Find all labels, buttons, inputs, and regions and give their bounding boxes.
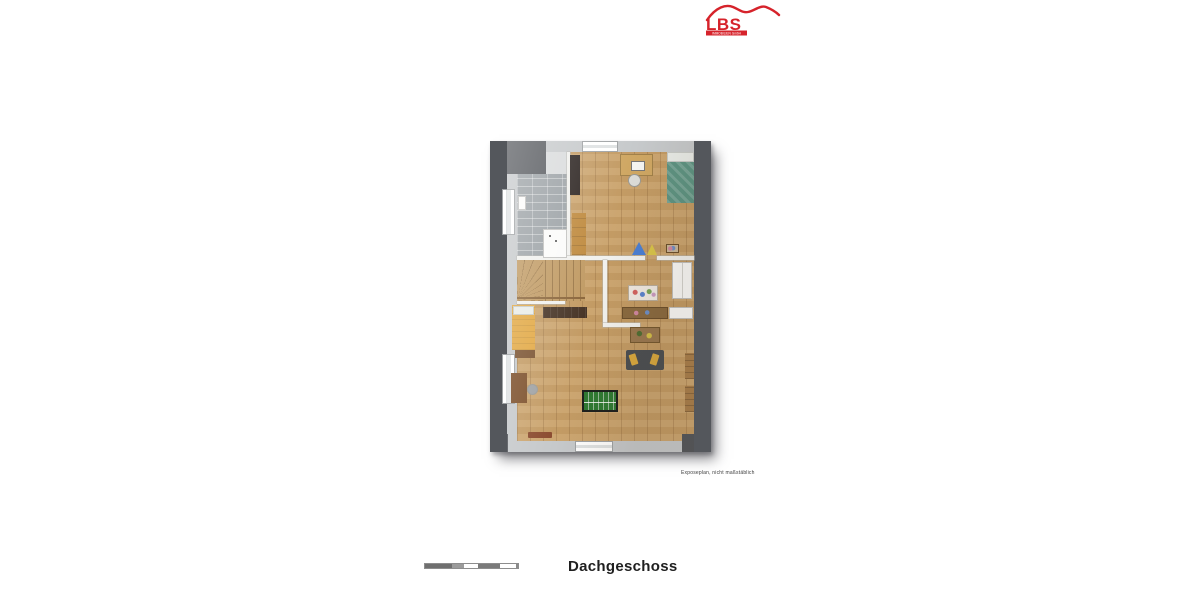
scale-segment	[500, 564, 516, 568]
roof-band-right	[694, 141, 711, 452]
sofa-cushion-left	[628, 353, 638, 366]
plan-caption: Exposeplan, nicht maßstäblich	[681, 470, 755, 476]
bed-bench	[515, 350, 535, 358]
bathroom-entry-floor	[546, 152, 567, 175]
scale-segment	[478, 564, 500, 568]
shelf-right-lower	[685, 386, 694, 412]
lbs-logo: LBS IMMOBILIEN GmbH	[698, 2, 782, 36]
bed-teal-pillow	[667, 152, 694, 162]
desk-playroom	[511, 373, 527, 403]
scale-segment	[516, 564, 518, 568]
wardrobe-white	[672, 262, 692, 299]
sofa-cushion-right	[649, 353, 659, 366]
bathroom-sink	[518, 196, 526, 210]
scale-segment	[425, 564, 452, 568]
scale-bar	[424, 563, 519, 569]
bed-teal	[667, 152, 694, 203]
logo-tagline-text: IMMOBILIEN GmbH	[712, 31, 742, 35]
wardrobe-dark	[570, 155, 580, 195]
desk-chair-bedroom	[628, 174, 641, 187]
foosball-table	[582, 390, 618, 412]
sideboard-childroom	[622, 307, 668, 319]
wall-below-stairs	[517, 301, 565, 304]
sofa	[626, 350, 664, 370]
roof-block-bottom-left	[490, 434, 508, 452]
staircase	[517, 260, 585, 301]
cabinet-tall-wood	[572, 213, 586, 255]
scale-segment	[464, 564, 478, 568]
shelf-right-upper	[685, 353, 694, 379]
toy-triangle-yellow	[647, 244, 657, 255]
wall-childroom-vertical	[603, 260, 607, 325]
desk-bedroom	[620, 154, 653, 176]
window-top	[582, 141, 618, 152]
toy-box	[666, 244, 679, 253]
roof-block-bottom-right	[682, 434, 711, 452]
wall-middle-right	[657, 256, 694, 260]
window-left-upper	[502, 189, 515, 235]
doormat	[528, 432, 552, 438]
staircase-winder	[517, 260, 543, 301]
window-bottom	[575, 441, 613, 452]
bed-yellow-pillow	[513, 306, 534, 315]
scale-segment	[452, 564, 464, 568]
laptop	[631, 161, 645, 171]
stair-railing	[517, 297, 585, 299]
roof-block-top-left	[490, 141, 546, 174]
page: LBS IMMOBILIEN GmbH	[0, 0, 1200, 600]
toy-triangle-blue	[632, 242, 646, 255]
foosball-center-line	[584, 402, 616, 403]
bed-yellow	[512, 305, 535, 350]
crib	[628, 285, 658, 301]
floor-plan	[490, 141, 711, 452]
dresser-dark	[543, 307, 587, 318]
cabinet-games	[630, 327, 660, 343]
washing-machine	[543, 229, 567, 258]
roof-band-left	[490, 141, 507, 452]
floor-title: Dachgeschoss	[568, 558, 677, 575]
desk-chair-playroom	[527, 384, 538, 395]
changing-table	[669, 307, 693, 319]
